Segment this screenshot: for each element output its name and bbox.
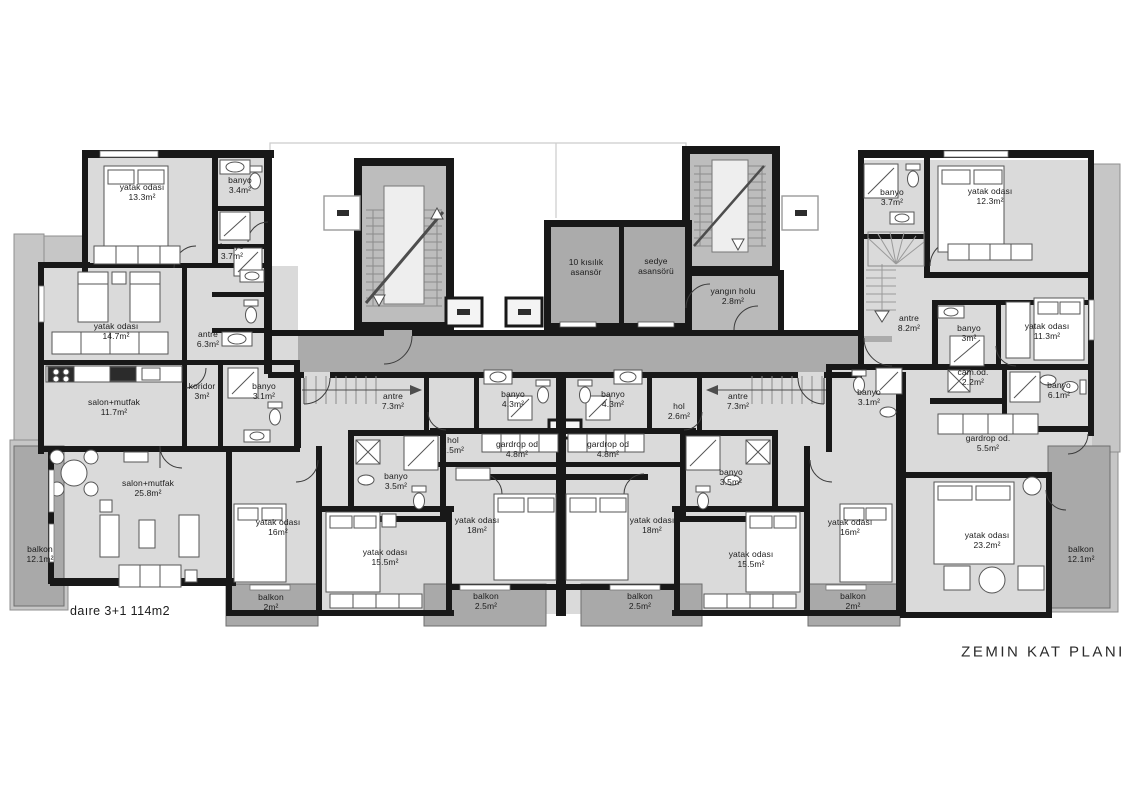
elevator-block	[544, 220, 692, 330]
apartment-type-note: daıre 3+1 114m2	[70, 604, 170, 618]
entry-gallery-band	[268, 336, 862, 374]
stair-right-details	[694, 160, 766, 252]
fire-lobby	[682, 270, 784, 336]
plan-title: ZEMIN KAT PLANI	[961, 644, 1125, 661]
kitchen-counter	[46, 366, 182, 382]
floor-plan: yatak odası13.3m²banyo3.4m²banyo3.7m²yat…	[0, 0, 1132, 800]
floor-plan-svg	[0, 0, 1132, 800]
